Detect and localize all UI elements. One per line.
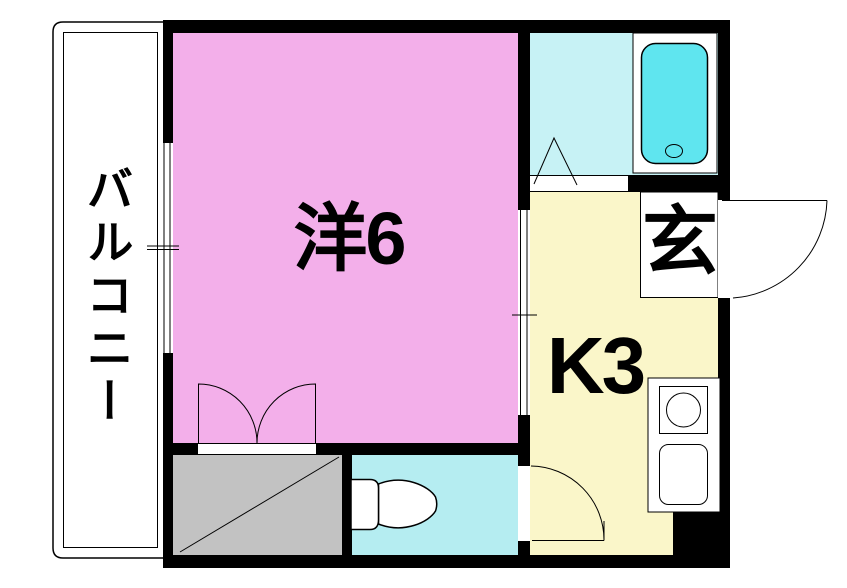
kitchen-counter <box>648 378 720 512</box>
wall-right-upper <box>718 20 730 200</box>
partition-opening-gap <box>518 210 530 415</box>
bathroom-threshold <box>530 175 628 192</box>
toilet-tank <box>351 480 379 530</box>
floor-plan: バルコニー 洋6 K3 玄 <box>0 0 847 588</box>
balcony-label: バルコニー <box>83 165 130 430</box>
kitchen-label: K3 <box>547 326 643 406</box>
wall-left-upper <box>163 20 173 143</box>
wall-bath-band <box>628 175 730 192</box>
wall-top <box>163 20 730 33</box>
bathtub <box>633 33 717 173</box>
toilet-door-gap <box>518 466 530 541</box>
wall-partition-upper <box>518 20 530 210</box>
wall-partition-mid <box>518 415 530 466</box>
entrance-door-gap <box>718 200 730 298</box>
wall-bottom <box>163 555 730 568</box>
western-room-label: 洋6 <box>293 202 404 276</box>
toilet <box>351 480 437 530</box>
wall-partition-lower <box>518 541 530 568</box>
wall-corner-block <box>673 512 730 568</box>
entrance-label: 玄 <box>642 205 718 281</box>
entrance-door-swing <box>722 201 827 299</box>
closet-threshold <box>198 443 316 455</box>
bathtub-tub <box>642 44 708 164</box>
balcony-window-gap <box>162 143 174 353</box>
wall-left-lower <box>163 353 173 568</box>
